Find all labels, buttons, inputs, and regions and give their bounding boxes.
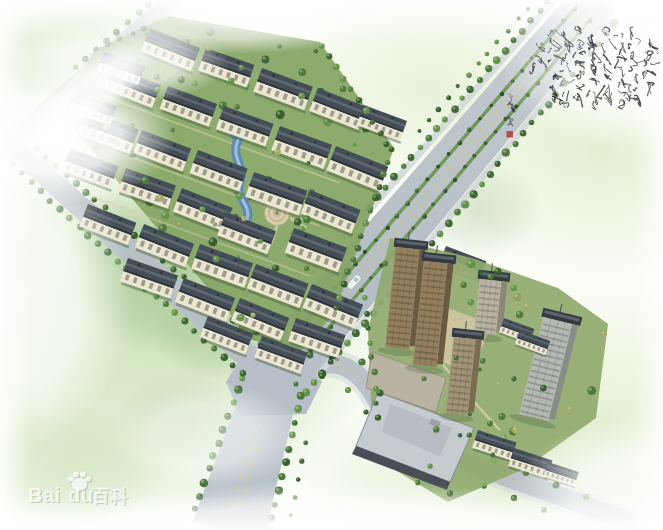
red-seal bbox=[507, 131, 514, 138]
watermark-bai: Bai bbox=[28, 484, 61, 506]
aerial-rendering-image: Bai du 百科 Bai du 百科 bbox=[0, 0, 663, 530]
screenshot-root: Bai du 百科 Bai du 百科 bbox=[0, 0, 663, 530]
watermark-baike: 百科 bbox=[91, 486, 128, 506]
